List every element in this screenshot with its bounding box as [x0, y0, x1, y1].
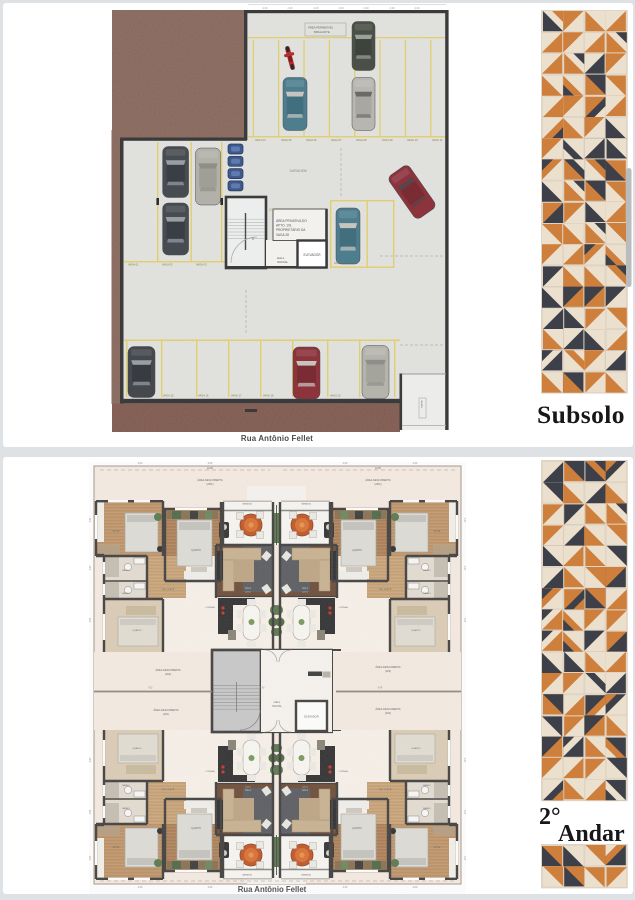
svg-text:Andar: Andar [558, 821, 625, 847]
svg-text:Subsolo: Subsolo [537, 400, 625, 429]
